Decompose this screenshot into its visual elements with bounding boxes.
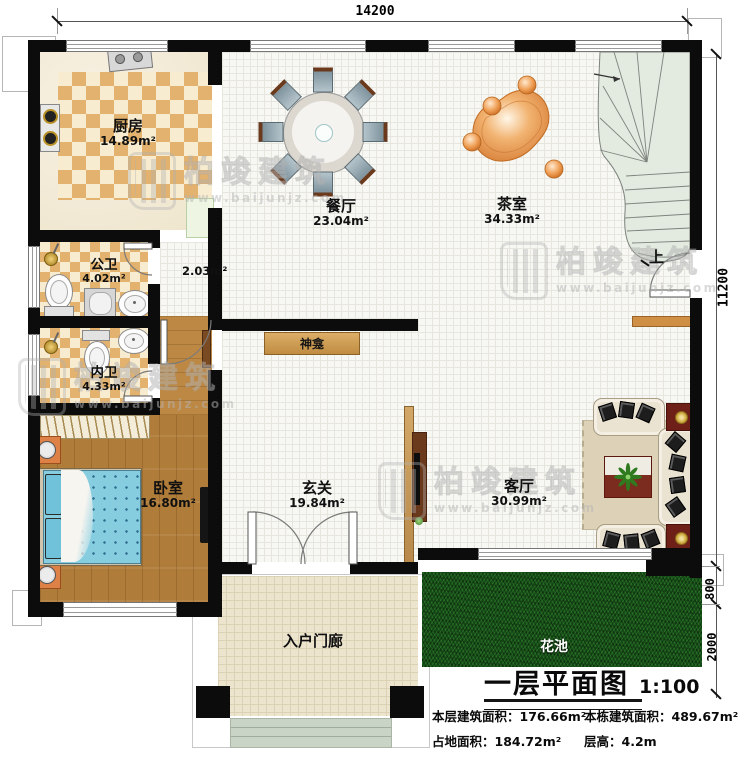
scale-label: 1:100 [639, 676, 699, 698]
door-leaf [124, 243, 152, 249]
dim-2000-label: 2000 [705, 625, 719, 669]
door-leaf [650, 290, 690, 297]
dim-width-label: 14200 [320, 4, 430, 19]
door-leaf [124, 396, 152, 402]
room-label-kitchen: 厨房 14.89m² [100, 118, 156, 148]
dim-800-label: 800 [703, 571, 717, 607]
dim-height-label: 11200 [717, 260, 732, 316]
stat-land-area: 占地面积：184.72m² [432, 731, 561, 750]
room-label-public-bath: 公卫 4.02m² [82, 258, 125, 285]
page-title: 一层平面图 [484, 662, 629, 701]
porch-label: 入户门廊 [283, 630, 343, 651]
door-leaf [349, 512, 357, 564]
stat-total-area: 本栋建筑面积：489.67m² [584, 706, 738, 725]
hallway-area-label: 2.03m² [182, 264, 227, 278]
room-label-foyer: 玄关 19.84m² [289, 480, 345, 510]
room-label-tea: 茶室 34.33m² [484, 196, 540, 226]
stairs-up-label: 上 [649, 246, 664, 267]
dim-ext [702, 566, 720, 567]
title-row: 一层平面图 1:100 [484, 662, 699, 701]
room-label-private-bath: 内卫 4.33m² [82, 366, 125, 393]
stat-floor-area: 本层建筑面积：176.66m² [432, 706, 586, 725]
room-label-dining: 餐厅 23.04m² [313, 198, 369, 228]
room-label-bedroom: 卧室 16.80m² [140, 480, 196, 510]
dim-line-top [57, 21, 687, 22]
room-label-living: 客厅 30.99m² [491, 478, 547, 508]
flower-bed-label: 花池 [540, 636, 568, 656]
floor-plan-canvas: 神龛 [0, 0, 750, 759]
door-leaf [161, 320, 167, 364]
stat-floor-height: 层高：4.2m [584, 731, 657, 750]
door-leaf [248, 512, 256, 564]
